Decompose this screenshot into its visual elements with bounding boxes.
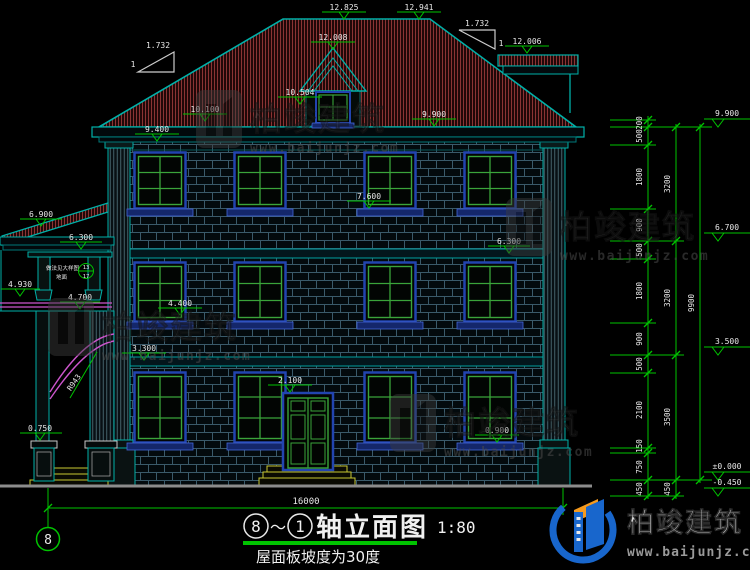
svg-text:柏竣建筑: 柏竣建筑 xyxy=(102,308,238,346)
slope-symbol-left: 1.732 1 xyxy=(131,41,174,72)
svg-text:7.600: 7.600 xyxy=(357,192,381,201)
svg-text:12.006: 12.006 xyxy=(513,37,542,46)
watermark-logo-icon xyxy=(196,90,242,148)
porch-beam xyxy=(28,252,112,257)
brand-logo-icon xyxy=(541,488,625,570)
right-dimension-chains: 200 500 1800 900 500 1800 900 500 2100 1… xyxy=(610,109,750,500)
level-mark: 6.700 xyxy=(704,223,750,241)
svg-text:450: 450 xyxy=(635,482,644,496)
level-mark: -0.450 xyxy=(704,478,750,496)
svg-text:地面: 地面 xyxy=(56,273,68,281)
drawing-title: 轴立面图 xyxy=(316,512,428,543)
svg-text:柏竣建筑: 柏竣建筑 xyxy=(627,507,743,539)
svg-text:9.400: 9.400 xyxy=(145,125,169,134)
drawing-canvas: 12.825 12.941 12.008 12.006 10.100 10.50… xyxy=(0,0,750,570)
svg-text:1: 1 xyxy=(131,60,136,69)
watermark: 柏竣建筑 www.baijunjz.com xyxy=(48,298,251,364)
svg-text:柏竣建筑: 柏竣建筑 xyxy=(250,100,386,138)
watermark: 柏竣建筑 www.baijunjz.com xyxy=(196,90,399,156)
window xyxy=(135,373,186,443)
floor-band-2 xyxy=(108,249,565,258)
elevation-marker: 4.930 xyxy=(1,280,40,296)
svg-text:柏竣建筑: 柏竣建筑 xyxy=(444,404,580,442)
svg-text:500: 500 xyxy=(635,357,644,371)
elevation-marker: 12.941 xyxy=(397,3,441,19)
total-width-dim: 16000 xyxy=(292,497,319,507)
svg-text:8: 8 xyxy=(251,517,261,536)
svg-text:1.732: 1.732 xyxy=(146,41,170,50)
svg-text:4.400: 4.400 xyxy=(168,299,192,308)
window xyxy=(465,263,516,322)
svg-text:～: ～ xyxy=(270,518,286,537)
svg-text:500: 500 xyxy=(635,129,644,143)
brand-logo: 柏竣建筑 www.baijunjz.com xyxy=(541,488,750,570)
svg-text:1800: 1800 xyxy=(635,167,644,186)
svg-text:3200: 3200 xyxy=(663,174,672,193)
elevation-marker: 12.006 xyxy=(505,37,549,53)
svg-text:±0.000: ±0.000 xyxy=(713,462,742,471)
svg-text:13: 13 xyxy=(83,265,90,271)
window xyxy=(365,263,416,322)
window xyxy=(135,153,186,209)
column-base-right xyxy=(85,441,117,481)
window xyxy=(465,153,516,209)
watermark: 柏竣建筑 www.baijunjz.com xyxy=(390,394,593,460)
svg-text:1: 1 xyxy=(295,517,305,536)
svg-text:www.baijunjz.com: www.baijunjz.com xyxy=(444,445,593,460)
svg-text:www.baijunjz.com: www.baijunjz.com xyxy=(560,249,709,264)
svg-text:3.500: 3.500 xyxy=(715,337,739,346)
svg-text:150: 150 xyxy=(635,439,644,453)
svg-text:9900: 9900 xyxy=(687,293,696,312)
elevation-marker: 12.825 xyxy=(322,3,366,19)
svg-text:www.baijunjz.com: www.baijunjz.com xyxy=(250,141,399,156)
svg-text:柏竣建筑: 柏竣建筑 xyxy=(560,208,696,246)
porch-column-upper xyxy=(38,257,50,290)
svg-text:2100: 2100 xyxy=(635,400,644,419)
svg-text:17: 17 xyxy=(83,274,90,280)
window xyxy=(235,153,286,209)
svg-text:1: 1 xyxy=(499,39,504,48)
svg-text:9.900: 9.900 xyxy=(715,109,739,118)
porch-fascia xyxy=(0,237,114,245)
door-step xyxy=(263,472,351,478)
axis-bubble-label: 8 xyxy=(44,533,52,548)
porch-detail-note: 做法见大样图 地面 13 17 xyxy=(46,264,94,282)
cad-elevation-drawing: 12.825 12.941 12.008 12.006 10.100 10.50… xyxy=(0,0,750,570)
svg-text:3500: 3500 xyxy=(663,407,672,426)
svg-text:450: 450 xyxy=(663,482,672,496)
watermark-logo-icon xyxy=(506,198,552,256)
svg-text:12.941: 12.941 xyxy=(405,3,434,12)
svg-text:12.825: 12.825 xyxy=(330,3,359,12)
svg-text:-0.450: -0.450 xyxy=(713,478,742,487)
svg-text:6.300: 6.300 xyxy=(69,233,93,242)
window xyxy=(235,263,286,322)
svg-text:2.100: 2.100 xyxy=(278,376,302,385)
svg-text:900: 900 xyxy=(635,332,644,346)
svg-text:做法见大样图: 做法见大样图 xyxy=(46,264,80,272)
watermark-logo-icon xyxy=(390,394,436,452)
svg-text:12.008: 12.008 xyxy=(319,33,348,42)
drawing-subtitle: 屋面板坡度为30度 xyxy=(256,548,380,566)
column-capital xyxy=(35,290,52,300)
drawing-scale: 1:80 xyxy=(437,518,476,537)
svg-text:4.930: 4.930 xyxy=(8,280,32,289)
column-base-left xyxy=(31,441,57,481)
svg-text:9.900: 9.900 xyxy=(422,110,446,119)
svg-text:1800: 1800 xyxy=(635,281,644,300)
svg-text:1.732: 1.732 xyxy=(465,19,489,28)
title-block: 8 ～ 1 轴立面图 1:80 屋面板坡度为30度 xyxy=(243,512,476,566)
title-underline xyxy=(243,541,417,545)
svg-text:6.700: 6.700 xyxy=(715,223,739,232)
svg-text:6.900: 6.900 xyxy=(29,210,53,219)
watermark: 柏竣建筑 www.baijunjz.com xyxy=(506,198,709,264)
svg-text:www.baijunjz.com: www.baijunjz.com xyxy=(627,545,750,560)
svg-text:3200: 3200 xyxy=(663,288,672,307)
door-step xyxy=(259,478,355,485)
svg-text:10.504: 10.504 xyxy=(286,88,315,97)
svg-text:0.750: 0.750 xyxy=(28,424,52,433)
porch-column-upper xyxy=(88,257,100,290)
level-mark: 9.900 xyxy=(704,109,750,127)
svg-text:www.baijunjz.com: www.baijunjz.com xyxy=(102,349,251,364)
porch-column-lower xyxy=(36,311,49,441)
svg-text:200: 200 xyxy=(635,116,644,130)
svg-text:750: 750 xyxy=(635,460,644,474)
watermark-logo-icon xyxy=(48,298,94,356)
level-mark: 3.500 xyxy=(704,337,750,355)
extension-lines xyxy=(610,120,712,496)
